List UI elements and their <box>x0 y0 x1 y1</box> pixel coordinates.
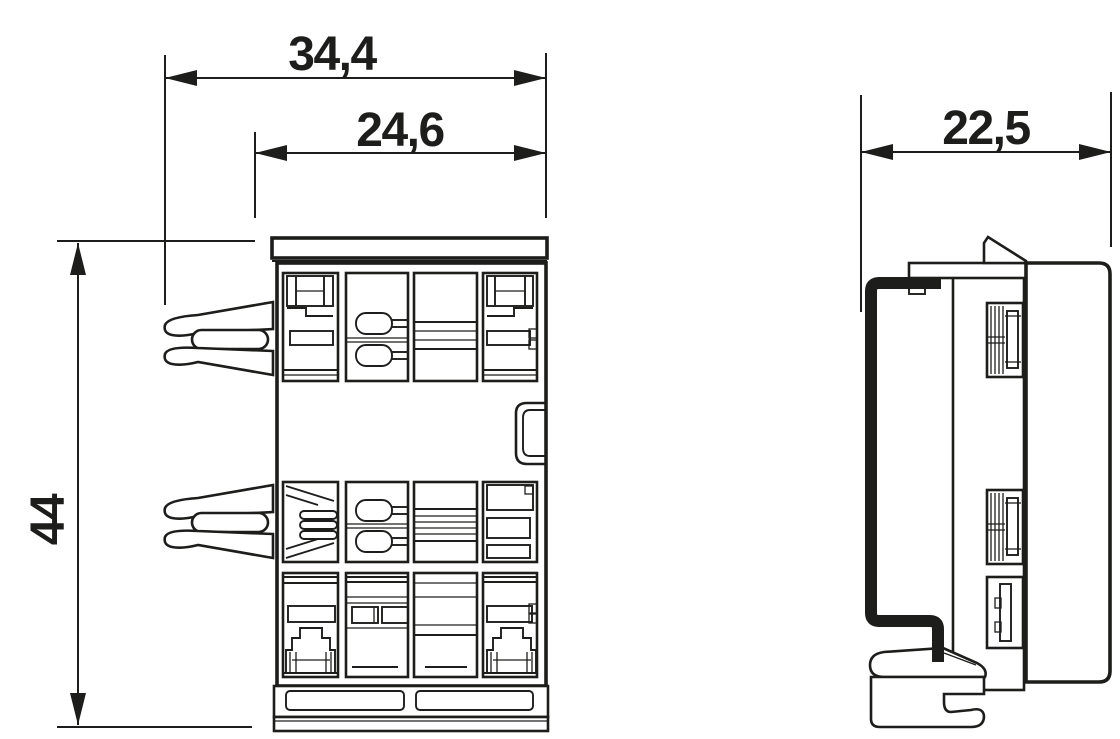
side-contact-block-1 <box>987 303 1023 377</box>
dim-label-overall-width: 34,4 <box>288 28 377 81</box>
front-bottom-assembly <box>274 686 548 731</box>
dim-label-inner-width: 24,6 <box>356 104 443 157</box>
terminal-block-dimension-drawing: 34,4 24,6 44 <box>0 0 1120 739</box>
top-cap <box>272 238 547 258</box>
technical-drawing-canvas: 34,4 24,6 44 <box>0 0 1120 739</box>
dim-label-height: 44 <box>22 493 75 545</box>
side-contact-block-2 <box>987 490 1023 564</box>
side-contact-block-3 <box>987 577 1023 648</box>
side-rear-body <box>1026 263 1110 682</box>
dim-label-depth: 22,5 <box>942 102 1030 155</box>
